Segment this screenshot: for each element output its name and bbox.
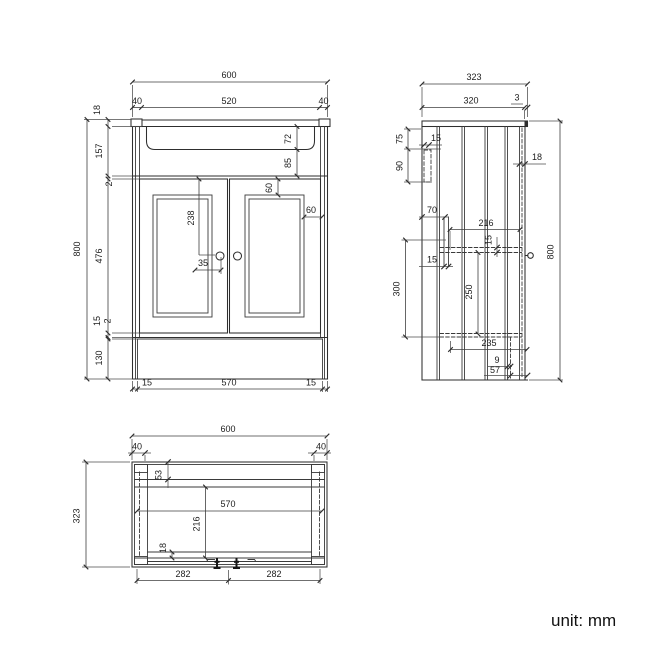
unit-label: unit: mm [551,611,616,630]
dim-front-plinth-height: 130 [94,350,104,365]
dim-front-top-gap: 2 [104,181,114,186]
dim-front-panel-inset-top: 60 [264,183,274,193]
dim-side-bracket-upper: 75 [395,134,405,144]
dim-front-handle-offset: 35 [198,258,208,268]
technical-drawing-page: 600 40 520 40 18 157 2 [0,0,650,650]
countertop-right-tab [319,119,330,127]
dim-front-door-height: 476 [94,248,104,263]
dim-side-plinth-recess: 57 [490,365,500,375]
dim-side-rail-width: 15 [427,255,437,265]
dim-plan-hinge-span-left: 282 [175,569,190,579]
corner-post-top-right [312,465,325,473]
knob-side-profile [528,253,534,259]
left-door-knob [216,252,224,260]
dim-front-plinth-inset-right: 15 [306,378,316,388]
dim-front-bottom-gap: 2 [103,318,113,323]
dim-front-bottom-rail: 15 [92,316,102,326]
dim-side-shelf-depth: 216 [478,218,493,228]
dim-side-top-depth: 320 [463,96,478,106]
dim-front-panel-inset-side: 60 [306,205,316,215]
countertop-left-tab [131,119,142,127]
dim-front-handle-from-top: 238 [186,210,196,225]
dim-front-upper-section: 157 [94,143,104,158]
dim-side-bracket-lower: 90 [395,161,405,171]
dim-side-overall-height: 800 [546,244,556,259]
plan-dimensions: 600 40 40 323 53 570 216 18 [72,424,332,585]
dim-front-side-right: 40 [318,96,328,106]
dim-front-top-thickness: 18 [92,105,102,115]
plan-view: 600 40 40 323 53 570 216 18 [72,424,332,585]
countertop-side [422,121,528,127]
dim-plan-overall-depth: 323 [72,508,82,523]
dim-front-overall-width: 600 [221,70,236,80]
dim-plan-inner-width: 570 [220,499,235,509]
dim-side-shelf-to-bottom: 250 [464,284,474,299]
dim-front-plinth-inset-left: 15 [142,378,152,388]
dim-plan-hinge-span-right: 282 [266,569,281,579]
dim-front-plinth-width: 570 [221,378,236,388]
dim-front-side-left: 40 [132,96,142,106]
dim-side-rail-offset: 70 [427,205,437,215]
dim-front-basin-depth: 72 [283,134,293,144]
front-view: 600 40 520 40 18 157 2 [72,70,330,392]
dim-side-top-lip: 3 [514,93,519,103]
dim-side-overall-depth: 323 [466,72,481,82]
dim-side-shelf-thickness: 15 [484,235,494,245]
wall-bracket-hidden [424,150,431,182]
side-view: 323 320 3 75 90 15 70 15 216 [392,72,564,380]
corner-post-top-left [135,465,148,473]
dim-front-overall-height: 800 [72,241,82,256]
front-dimensions: 600 40 520 40 18 157 2 [72,70,329,392]
dim-plan-inner-depth: 216 [192,516,202,531]
dim-side-shelf-drop: 300 [392,281,402,296]
dim-plan-back-rail: 53 [154,470,164,480]
dim-plan-overall-width: 600 [220,424,235,434]
dim-side-door-thickness: 18 [532,152,542,162]
dim-plan-front-rail: 18 [158,543,168,553]
dim-front-basin-to-doors: 85 [283,158,293,168]
dim-side-front-gap: 9 [494,355,499,365]
right-door [230,179,321,333]
dim-side-bottom-depth: 235 [481,338,496,348]
side-structure [422,121,533,380]
front-structure [131,119,330,379]
dim-plan-post-left: 40 [132,442,142,452]
left-door-panel [153,195,212,317]
dim-front-basin-width: 520 [221,96,236,106]
vanity-technical-drawing: 600 40 520 40 18 157 2 [0,0,650,650]
right-door-panel [245,195,304,317]
right-door-knob [234,252,242,260]
dim-plan-post-right: 40 [316,442,326,452]
dim-side-back-panel: 15 [431,133,441,143]
